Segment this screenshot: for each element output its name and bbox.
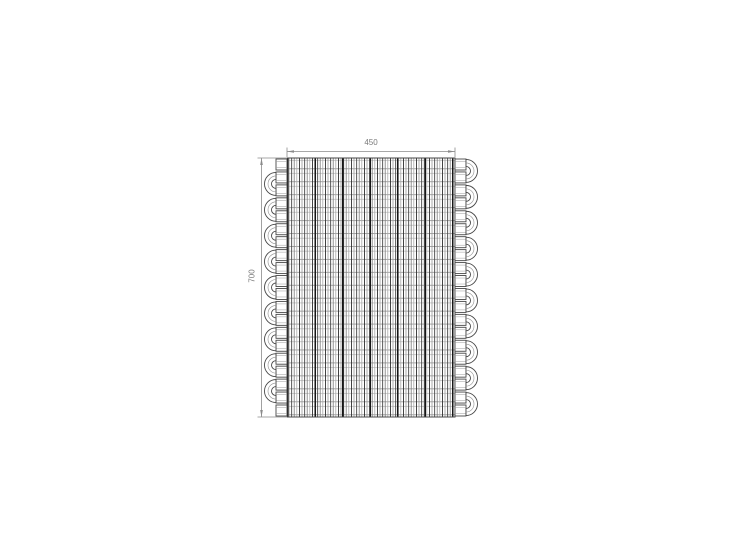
- dim-label-width: 450: [364, 138, 378, 147]
- heat-exchanger-drawing: 450 700: [0, 0, 750, 550]
- dim-label-height: 700: [248, 269, 257, 283]
- drawing-canvas: 450 700: [0, 0, 750, 550]
- fin-block: [287, 158, 455, 417]
- dimension-width: [287, 148, 455, 158]
